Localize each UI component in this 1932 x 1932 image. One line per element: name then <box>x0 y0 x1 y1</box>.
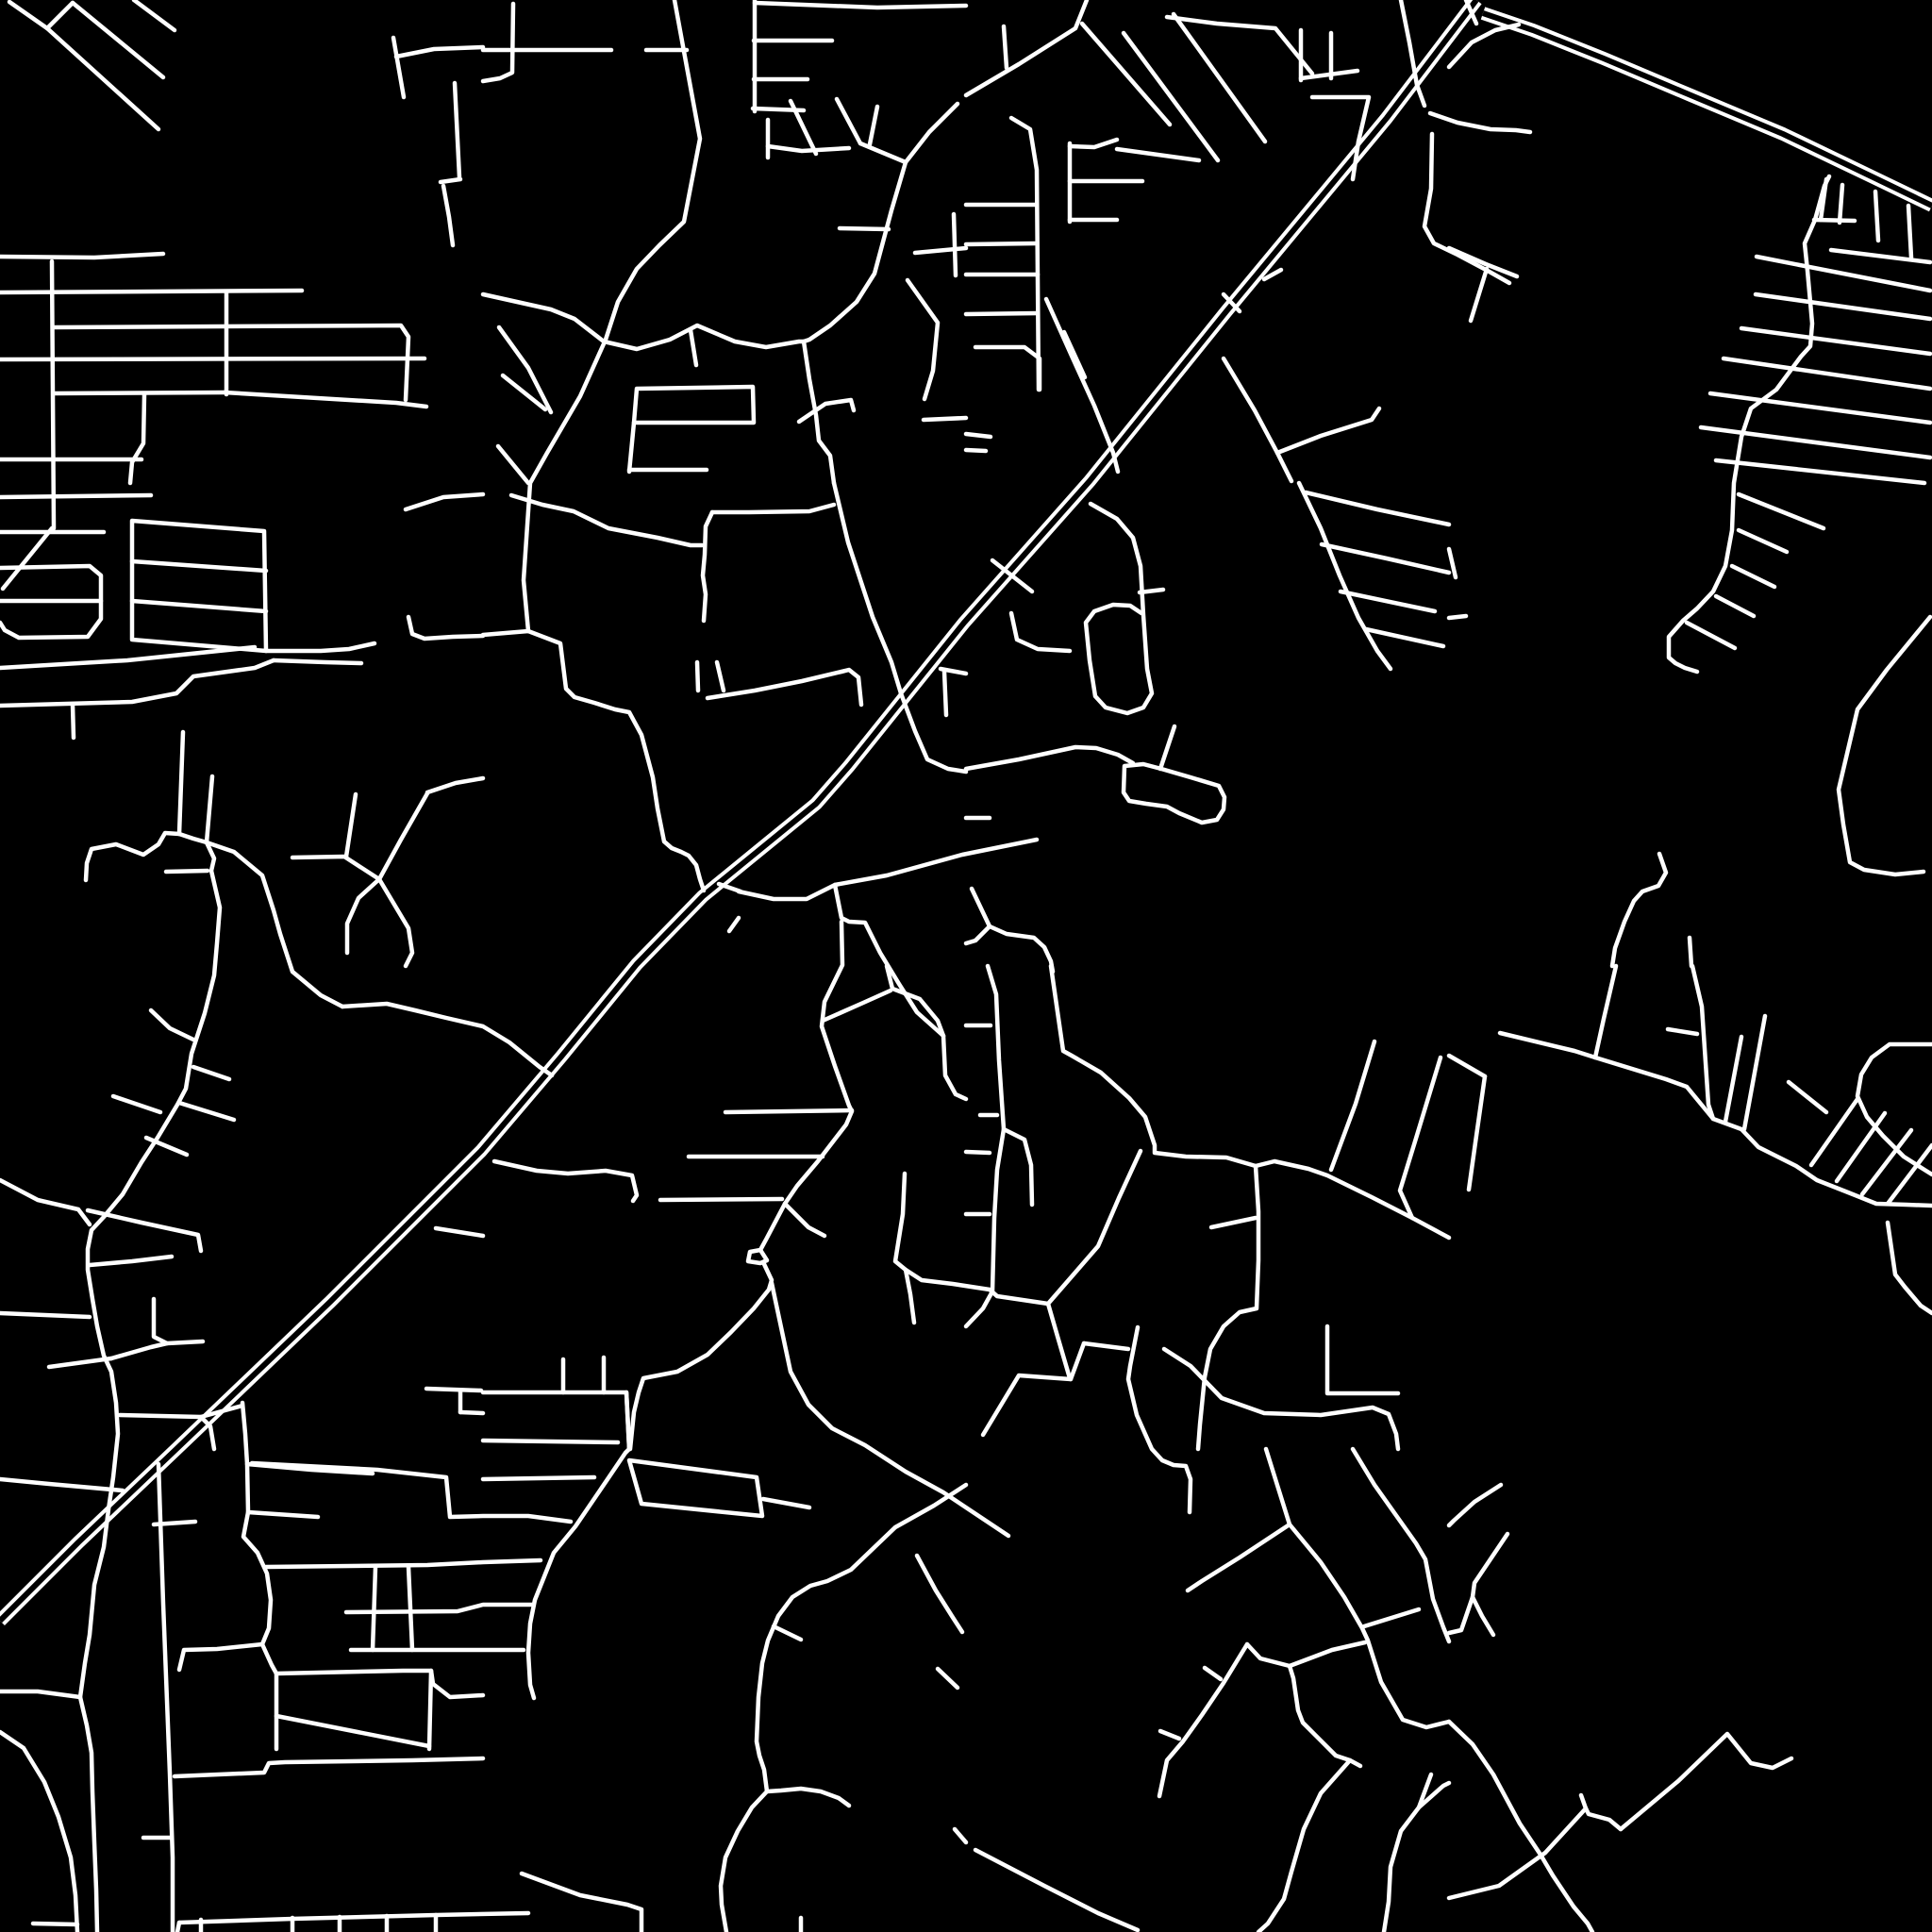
road-segment-27 <box>266 643 375 651</box>
road-segment-49 <box>524 0 700 631</box>
road-segment-176 <box>1687 623 1735 648</box>
road-segment-217 <box>1400 1058 1441 1218</box>
road-segment-149 <box>966 0 1087 95</box>
road-segment-80 <box>499 327 551 412</box>
road-segment-159 <box>1840 185 1842 223</box>
road-segment-75 <box>634 387 754 423</box>
road-segment-290 <box>179 1103 234 1120</box>
road-segment-55 <box>697 662 698 691</box>
road-segment-263 <box>1188 1524 1290 1591</box>
road-segment-132 <box>966 243 1037 244</box>
road-segment-215 <box>1327 1326 1398 1393</box>
road-segment-15 <box>55 392 225 393</box>
road-segment-296 <box>111 1343 167 1358</box>
road-segment-291 <box>113 1096 160 1112</box>
road-segment-105 <box>483 1441 618 1442</box>
road-segment-106 <box>895 1174 914 1323</box>
road-segment-45 <box>427 778 483 792</box>
road-segment-1 <box>47 3 73 28</box>
road-segment-209 <box>1048 1304 1070 1378</box>
road-segment-270 <box>1258 1760 1350 1932</box>
road-map-canvas <box>0 0 1932 1932</box>
road-segment-118 <box>990 926 1053 972</box>
road-segment-53 <box>712 505 834 512</box>
road-segment-25 <box>132 561 266 571</box>
road-segment-213 <box>1084 1343 1128 1349</box>
road-segment-191 <box>1744 1016 1765 1129</box>
road-segment-271 <box>1384 1774 1431 1932</box>
road-segment-172 <box>1739 494 1824 528</box>
road-segment-112 <box>1124 764 1224 823</box>
road-segment-174 <box>1732 566 1774 587</box>
road-segment-257 <box>955 1829 966 1842</box>
road-segment-240 <box>179 1913 528 1923</box>
road-segment-65 <box>768 146 849 151</box>
road-segment-276 <box>1449 1597 1473 1633</box>
road-segment-50 <box>483 631 528 635</box>
road-segment-184 <box>1449 1056 1485 1076</box>
road-segment-34 <box>179 732 183 834</box>
road-segment-251 <box>757 1485 966 1791</box>
road-segment-59 <box>755 3 966 8</box>
road-segment-52 <box>511 495 702 545</box>
road-segment-246 <box>177 1923 179 1932</box>
road-segment-128 <box>1046 299 1118 472</box>
road-segment-110 <box>1086 504 1152 713</box>
road-segment-233 <box>431 1671 483 1697</box>
road-segment-226 <box>373 1567 375 1650</box>
road-segment-248 <box>483 1477 594 1479</box>
road-segment-255 <box>917 1556 962 1632</box>
road-segment-169 <box>1710 393 1930 423</box>
road-segment-0 <box>9 2 158 129</box>
road-segment-266 <box>1290 1666 1360 1766</box>
road-segment-91 <box>943 1036 966 1099</box>
road-segment-3 <box>134 0 175 30</box>
road-segment-107 <box>906 1270 1048 1304</box>
road-segment-164 <box>1669 176 1829 672</box>
road-segment-72 <box>954 214 956 275</box>
road-segment-160 <box>1814 220 1855 221</box>
road-segment-8 <box>443 186 453 245</box>
road-segment-182 <box>1612 854 1666 966</box>
road-segment-71 <box>915 248 966 253</box>
road-segment-54 <box>703 512 712 621</box>
road-segment-39 <box>166 871 208 872</box>
road-segment-178 <box>1471 269 1487 321</box>
road-segment-111 <box>1140 590 1163 592</box>
road-segment-90 <box>835 885 943 1036</box>
road-segment-205 <box>1051 966 1449 1238</box>
road-segment-256 <box>938 1669 958 1688</box>
road-segment-31 <box>73 705 74 738</box>
road-segment-57 <box>708 670 861 705</box>
road-segment-212 <box>1128 1327 1191 1512</box>
road-segment-96 <box>785 1204 824 1236</box>
road-segment-134 <box>966 313 1038 314</box>
road-segment-14 <box>0 358 425 359</box>
road-segment-11 <box>0 291 302 292</box>
road-segment-274 <box>1449 1485 1501 1525</box>
road-segment-120 <box>1306 492 1449 525</box>
road-segment-249 <box>629 1460 762 1516</box>
road-segment-13 <box>55 325 408 400</box>
road-segment-252 <box>721 1791 767 1932</box>
road-segment-24 <box>132 521 266 651</box>
road-segment-143 <box>1117 149 1199 160</box>
road-segment-189 <box>1668 1029 1697 1034</box>
road-segment-202 <box>966 1152 990 1153</box>
road-segment-135 <box>975 347 1040 390</box>
road-segment-79 <box>924 418 966 420</box>
road-segment-154 <box>1430 113 1530 132</box>
road-segment-283 <box>426 1389 481 1391</box>
main-diagonal-highway-casing <box>0 0 1476 1621</box>
road-segment-218 <box>0 1479 123 1491</box>
road-segment-299 <box>0 1180 90 1224</box>
road-segment-137 <box>1070 140 1117 147</box>
road-segment-42 <box>346 794 356 857</box>
road-segment-89 <box>739 840 1037 899</box>
road-segment-181 <box>1839 617 1930 874</box>
road-segment-168 <box>1724 358 1930 389</box>
road-segment-220 <box>242 1403 276 1674</box>
road-segment-16 <box>225 392 426 407</box>
road-segment-224 <box>252 1463 571 1522</box>
road-segment-264 <box>1290 1642 1365 1666</box>
road-segment-227 <box>408 1567 412 1650</box>
road-network-map <box>0 0 1932 1932</box>
road-segment-98 <box>725 1110 852 1112</box>
road-segment-67 <box>870 107 877 144</box>
road-segment-93 <box>823 991 891 1021</box>
road-segment-141 <box>1124 33 1218 160</box>
road-segment-9 <box>0 254 163 258</box>
road-segment-223 <box>179 1644 262 1670</box>
road-segment-41 <box>342 1004 552 1075</box>
road-segment-109 <box>1011 613 1070 651</box>
road-segment-269 <box>1160 1731 1179 1739</box>
road-segment-208 <box>1048 1151 1141 1304</box>
road-segment-280 <box>1586 1808 1621 1829</box>
road-segment-114 <box>966 747 1133 769</box>
road-segment-28 <box>0 647 255 668</box>
road-segment-268 <box>1205 1668 1221 1679</box>
road-segment-190 <box>1725 1037 1741 1122</box>
road-segment-232 <box>276 1716 429 1746</box>
road-segment-113 <box>1160 726 1174 769</box>
road-segment-56 <box>717 662 724 691</box>
road-segment-78 <box>799 400 854 422</box>
road-segment-273 <box>975 1850 1138 1930</box>
road-segment-183 <box>1690 938 1691 966</box>
road-segment-117 <box>966 926 990 943</box>
road-segment-167 <box>1741 328 1930 354</box>
road-segment-295 <box>154 1299 203 1343</box>
road-segment-30 <box>274 660 361 663</box>
road-segment-288 <box>151 1010 193 1040</box>
road-segment-225 <box>266 1560 541 1567</box>
road-segment-192 <box>1789 1082 1826 1112</box>
road-segment-210 <box>983 1375 1071 1435</box>
road-segment-18 <box>130 394 144 483</box>
road-segment-289 <box>193 1067 229 1079</box>
road-segment-163 <box>1831 250 1930 262</box>
road-segment-234 <box>175 1758 483 1776</box>
northeast-highway-casing <box>1483 13 1932 206</box>
road-segment-294 <box>90 1257 172 1265</box>
road-segment-177 <box>1449 248 1517 276</box>
road-segment-250 <box>763 1499 809 1507</box>
road-segment-123 <box>1366 629 1443 646</box>
road-segment-88 <box>729 918 739 931</box>
road-segment-298 <box>49 1358 111 1367</box>
road-segment-84 <box>834 483 966 772</box>
road-segment-73 <box>483 294 804 349</box>
road-segment-155 <box>1424 134 1509 283</box>
road-segment-129 <box>1064 332 1085 377</box>
road-segment-126 <box>1224 358 1291 481</box>
main-diagonal-highway-median <box>0 0 1476 1621</box>
road-segment-4 <box>393 38 404 97</box>
road-segment-281 <box>1621 1734 1791 1829</box>
road-segment-32 <box>406 494 483 509</box>
road-segment-152 <box>966 450 986 451</box>
road-segment-180 <box>1449 616 1466 618</box>
road-segment-254 <box>774 1626 801 1640</box>
road-segment-95 <box>630 1264 772 1449</box>
road-segment-86 <box>944 672 946 715</box>
road-segment-19 <box>0 495 151 497</box>
road-segment-21 <box>3 528 52 589</box>
road-segment-40 <box>207 842 342 1007</box>
road-segment-69 <box>804 104 958 483</box>
road-segment-37 <box>179 834 207 842</box>
road-segment-237 <box>0 1732 77 1932</box>
road-segment-216 <box>1331 1041 1374 1170</box>
road-segment-162 <box>1908 206 1911 258</box>
road-segment-297 <box>0 1313 90 1317</box>
road-segment-144 <box>1167 17 1312 74</box>
road-segment-150 <box>1004 26 1007 68</box>
road-segment-282 <box>436 1228 483 1236</box>
road-segment-261 <box>1353 1449 1449 1641</box>
road-segment-275 <box>1473 1534 1507 1635</box>
road-segment-211 <box>1071 1343 1084 1379</box>
road-segment-187 <box>1595 966 1616 1058</box>
road-segment-194 <box>1811 1099 1857 1165</box>
road-segment-76 <box>629 423 634 472</box>
road-segment-94 <box>748 922 852 1263</box>
road-segment-46 <box>483 4 513 81</box>
road-segment-247 <box>528 1392 629 1698</box>
road-segment-262 <box>1364 1609 1419 1626</box>
road-segment-265 <box>1247 1644 1290 1666</box>
road-segment-230 <box>276 1671 431 1749</box>
road-segment-185 <box>1469 1076 1485 1190</box>
road-segment-127 <box>1277 408 1379 453</box>
road-segment-100 <box>660 1199 782 1200</box>
road-segment-175 <box>1716 596 1754 616</box>
road-segment-116 <box>972 889 990 926</box>
road-segment-199 <box>966 966 1004 1326</box>
road-segment-238 <box>0 1691 80 1697</box>
road-segment-70 <box>840 228 889 229</box>
road-segment-26 <box>132 601 266 611</box>
road-segment-173 <box>1739 530 1787 552</box>
road-segment-68 <box>860 143 906 162</box>
road-segment-259 <box>522 1874 641 1932</box>
road-segment-207 <box>1211 1218 1256 1227</box>
road-segment-121 <box>1322 544 1449 573</box>
road-segment-166 <box>1756 294 1930 319</box>
road-segment-74 <box>691 330 696 365</box>
road-segment-198 <box>1888 1223 1932 1313</box>
road-segment-36 <box>207 776 212 842</box>
road-segment-235 <box>158 1464 173 1932</box>
road-segment-38 <box>80 842 220 1932</box>
road-segment-171 <box>1716 460 1924 483</box>
road-segment-222 <box>248 1512 318 1517</box>
road-segment-51 <box>528 631 704 891</box>
road-segment-66 <box>837 99 860 143</box>
road-segment-151 <box>966 434 991 437</box>
road-segment-82 <box>498 446 528 483</box>
road-segment-239 <box>33 1924 77 1924</box>
road-segment-161 <box>1875 192 1878 241</box>
road-segment-7 <box>441 179 460 182</box>
road-segment-204 <box>1004 1129 1032 1205</box>
road-segment-101 <box>494 1161 637 1201</box>
road-segment-285 <box>460 1412 483 1413</box>
road-segment-253 <box>767 1789 849 1806</box>
road-segment-44 <box>347 793 427 953</box>
road-segment-83 <box>908 280 938 399</box>
road-segment-165 <box>1757 257 1930 291</box>
road-segment-5 <box>396 47 483 57</box>
road-segment-170 <box>1701 427 1930 458</box>
road-segment-33 <box>408 617 483 639</box>
road-segment-6 <box>455 83 459 177</box>
